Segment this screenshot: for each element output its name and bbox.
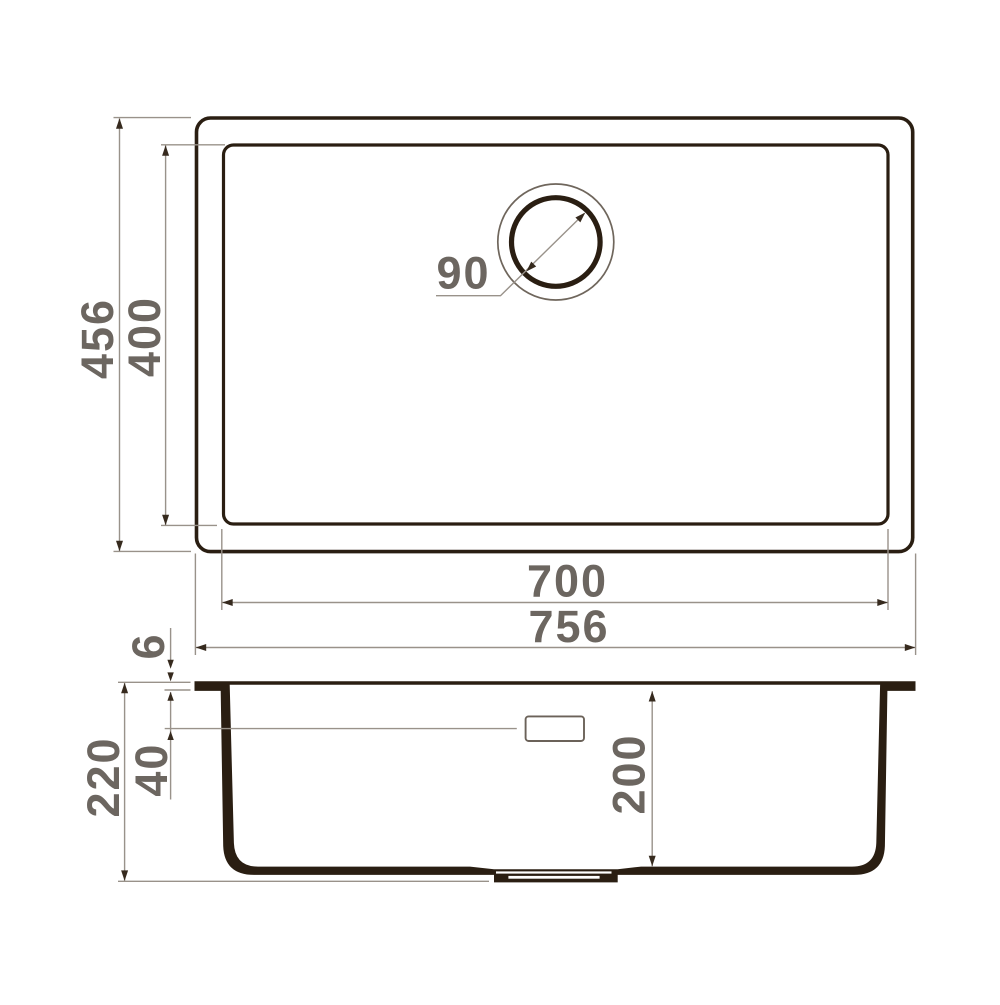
svg-text:200: 200 (604, 733, 655, 814)
svg-text:90: 90 (436, 248, 490, 299)
svg-text:220: 220 (78, 736, 129, 817)
svg-text:756: 756 (528, 601, 609, 652)
svg-text:40: 40 (126, 743, 177, 797)
svg-text:456: 456 (72, 298, 123, 379)
svg-text:400: 400 (119, 296, 170, 377)
svg-text:700: 700 (527, 556, 608, 607)
svg-text:6: 6 (123, 632, 174, 659)
